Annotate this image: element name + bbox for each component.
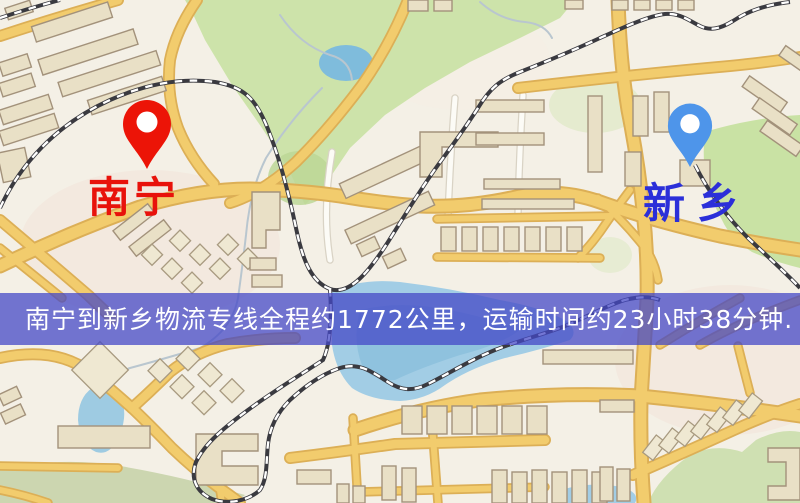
- xinxiang-label: 新乡: [643, 179, 751, 228]
- route-info-banner: 南宁到新乡物流专线全程约1772公里，运输时间约23小时38分钟.: [0, 293, 800, 345]
- map-screenshot: 南宁到新乡物流专线全程约1772公里，运输时间约23小时38分钟. 南宁 新乡: [0, 0, 800, 503]
- nanning-label: 南宁: [88, 173, 180, 222]
- route-info-text: 南宁到新乡物流专线全程约1772公里，运输时间约23小时38分钟.: [25, 305, 793, 334]
- map-canvas: 南宁到新乡物流专线全程约1772公里，运输时间约23小时38分钟. 南宁 新乡: [0, 0, 800, 503]
